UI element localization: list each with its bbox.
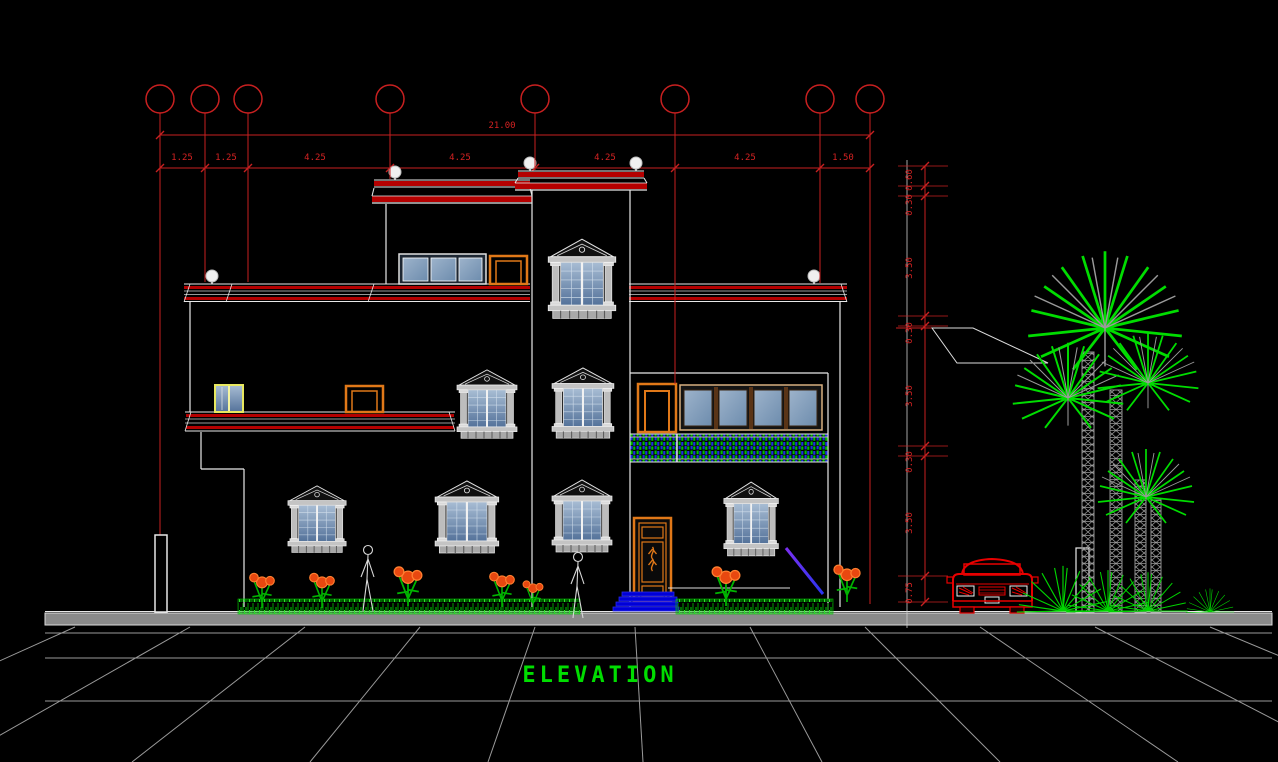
- dim-height-segment: 3.50: [905, 385, 915, 407]
- checker-railing-band: [630, 434, 828, 462]
- palm-crown: [1013, 343, 1123, 428]
- roof-lamp: [808, 270, 820, 284]
- dim-height-segment: 3.50: [905, 257, 915, 279]
- balcony-door-frame: [346, 386, 383, 412]
- dim-width-segment: 1.50: [832, 153, 854, 163]
- grass-strip: [238, 599, 580, 614]
- dim-width-segment: 4.25: [449, 153, 471, 163]
- dim-height-segment: 0.60: [905, 169, 915, 191]
- dim-width-segment: 4.25: [734, 153, 756, 163]
- building-elevation: [184, 157, 847, 611]
- roof-lamp: [206, 270, 218, 284]
- grass-strip: [676, 599, 833, 614]
- top-dimension-lines: [156, 131, 874, 172]
- street-band: [45, 613, 1272, 625]
- dim-height-segment: 0.30: [905, 194, 915, 216]
- terrace-door-frame: [490, 256, 527, 284]
- yellow-window: [215, 385, 243, 412]
- elevation-canvas: [0, 0, 1278, 762]
- grid-bubbles: [146, 85, 884, 113]
- dim-height-segment: 3.50: [905, 512, 915, 534]
- pavement-grid: [0, 627, 1278, 762]
- dim-width-segment: 4.25: [594, 153, 616, 163]
- right-2f-wide-window: [680, 385, 822, 430]
- dim-height-segment: 0.75: [905, 582, 915, 604]
- dim-height-segment: 0.30: [905, 322, 915, 344]
- leader-flag: [932, 328, 1048, 363]
- dim-width-segment: 4.25: [304, 153, 326, 163]
- entrance-door: [634, 518, 671, 602]
- dim-total-width: 21.00: [488, 121, 515, 131]
- dim-width-segment: 1.25: [215, 153, 237, 163]
- roof-lamp: [389, 166, 401, 180]
- boundary-post: [155, 535, 167, 612]
- fan-plant: [1186, 588, 1234, 612]
- right-2f-door-frame: [638, 384, 676, 432]
- cad-elevation-drawing: 21.00 1.25 1.25 4.25 4.25 4.25 4.25 1.50…: [0, 0, 1278, 762]
- roof-lamp: [630, 157, 642, 171]
- terrace-window: [399, 254, 486, 284]
- palm-crown: [1028, 251, 1182, 369]
- drawing-title: ELEVATION: [522, 663, 677, 688]
- dim-height-segment: 0.30: [905, 451, 915, 473]
- right-dimension-chain: [896, 160, 1048, 628]
- palm-crown: [1098, 333, 1199, 411]
- dim-width-segment: 1.25: [171, 153, 193, 163]
